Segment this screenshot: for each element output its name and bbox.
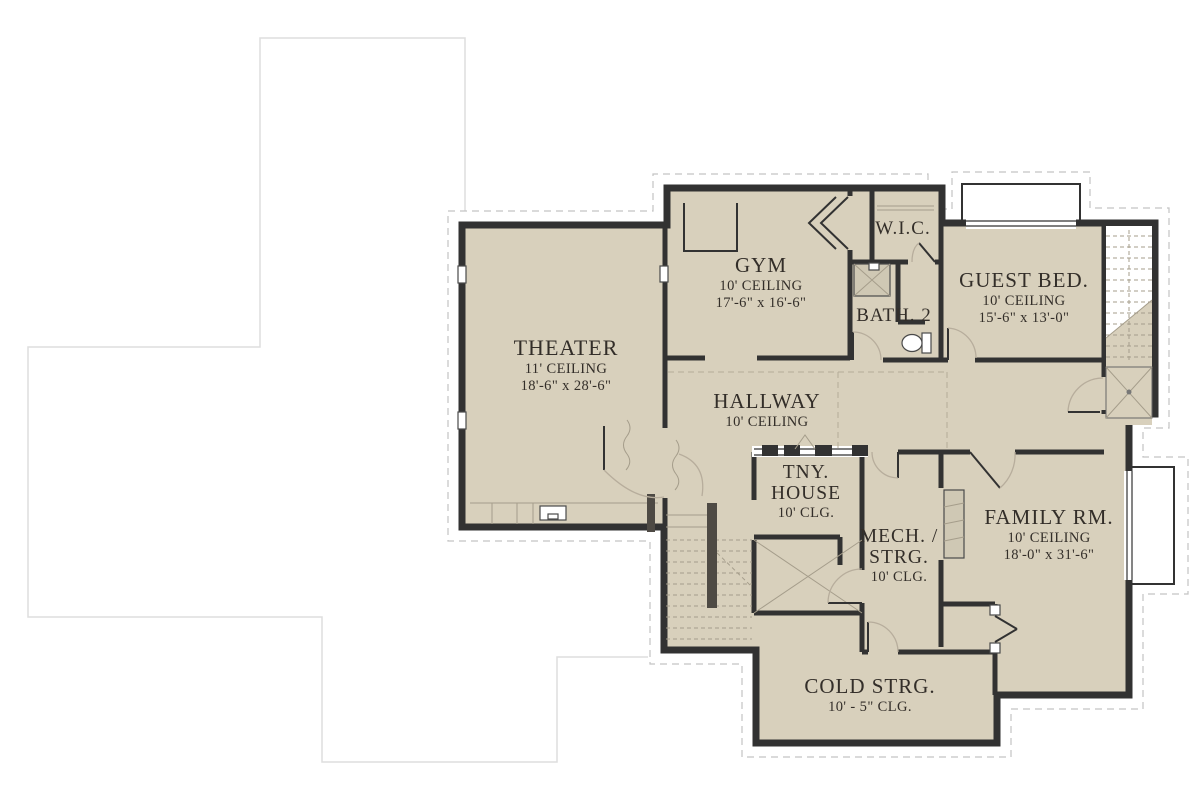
- tiny-house-windows: [752, 445, 868, 457]
- room-name: GYM: [716, 254, 807, 277]
- room-name: GUEST BED.: [959, 269, 1089, 292]
- room-ceiling: 10' CEILING: [984, 531, 1113, 547]
- stair-rail: [707, 503, 717, 608]
- guest-bed-window: [966, 218, 1076, 229]
- room-name: HALLWAY: [713, 390, 820, 413]
- room-name: COLD STRG.: [804, 675, 935, 698]
- room-name: W.I.C.: [875, 219, 930, 240]
- room-label-family-room: FAMILY RM. 10' CEILING 18'-0" x 31'-6": [984, 506, 1113, 564]
- room-label-mech-storage: MECH. / STRG. 10' CLG.: [860, 526, 939, 586]
- room-ceiling: 10' - 5" CLG.: [804, 700, 935, 716]
- stair-newel-dot: [1127, 390, 1132, 395]
- room-name: FAMILY RM.: [984, 506, 1113, 529]
- room-label-theater: THEATER 11' CEILING 18'-6" x 28'-6": [514, 336, 619, 395]
- room-name-line2: STRG.: [860, 547, 939, 568]
- room-ceiling: 10' CEILING: [716, 279, 807, 295]
- floor-plan-canvas: THEATER 11' CEILING 18'-6" x 28'-6" GYM …: [0, 0, 1200, 801]
- room-ceiling: 11' CEILING: [514, 362, 619, 378]
- room-label-tiny-house: TNY. HOUSE 10' CLG.: [771, 462, 841, 522]
- stairs-right-shaft: [1106, 226, 1152, 425]
- family-room-window-bay: [1131, 467, 1174, 584]
- room-label-gym: GYM 10' CEILING 17'-6" x 16'-6": [716, 254, 807, 312]
- room-name-line2: HOUSE: [771, 483, 841, 504]
- floor-plan-drawing: [0, 0, 1200, 801]
- room-ceiling: 10' CLG.: [771, 506, 841, 522]
- room-dims: 17'-6" x 16'-6": [716, 296, 807, 312]
- room-label-guest-bed: GUEST BED. 10' CEILING 15'-6" x 13'-0": [959, 269, 1089, 327]
- toilet-fixture: [902, 333, 931, 353]
- room-label-wic: W.I.C.: [875, 219, 930, 240]
- room-label-cold-storage: COLD STRG. 10' - 5" CLG.: [804, 675, 935, 715]
- room-label-bath2: BATH. 2: [856, 306, 932, 327]
- room-name-line1: TNY.: [771, 462, 841, 483]
- guest-bed-window-bay: [962, 184, 1080, 223]
- room-name: THEATER: [514, 336, 619, 360]
- room-dims: 18'-0" x 31'-6": [984, 548, 1113, 564]
- family-room-window: [1124, 471, 1135, 580]
- room-name: BATH. 2: [856, 306, 932, 327]
- shower-fixture: [854, 263, 890, 296]
- room-ceiling: 10' CLG.: [860, 570, 939, 586]
- room-ceiling: 10' CEILING: [713, 415, 820, 431]
- room-ceiling: 10' CEILING: [959, 294, 1089, 310]
- room-label-hallway: HALLWAY 10' CEILING: [713, 390, 820, 430]
- room-dims: 18'-6" x 28'-6": [514, 379, 619, 395]
- room-dims: 15'-6" x 13'-0": [959, 311, 1089, 327]
- family-builtin-shelves: [944, 490, 964, 558]
- room-name-line1: MECH. /: [860, 526, 939, 547]
